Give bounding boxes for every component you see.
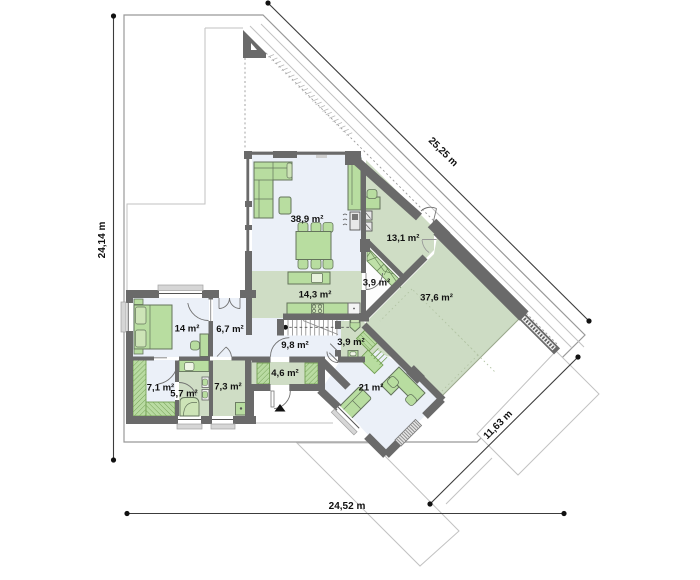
svg-text:4,6 m²: 4,6 m² — [271, 368, 298, 379]
svg-text:14,3 m²: 14,3 m² — [299, 290, 332, 301]
svg-text:13,1 m²: 13,1 m² — [387, 233, 420, 244]
svg-text:38,9 m²: 38,9 m² — [291, 214, 324, 225]
svg-text:37,6 m²: 37,6 m² — [420, 293, 453, 304]
svg-text:24,52 m: 24,52 m — [329, 501, 366, 512]
svg-text:24,14 m: 24,14 m — [97, 222, 108, 259]
svg-text:21 m²: 21 m² — [359, 383, 384, 394]
svg-text:3,9 m²: 3,9 m² — [337, 337, 364, 348]
svg-text:14 m²: 14 m² — [175, 324, 200, 335]
svg-text:7,3 m²: 7,3 m² — [214, 382, 241, 393]
svg-text:9,8 m²: 9,8 m² — [281, 340, 308, 351]
svg-text:3,9 m²: 3,9 m² — [363, 278, 390, 289]
svg-text:5,7 m²: 5,7 m² — [170, 389, 197, 400]
svg-text:6,7 m²: 6,7 m² — [216, 324, 243, 335]
